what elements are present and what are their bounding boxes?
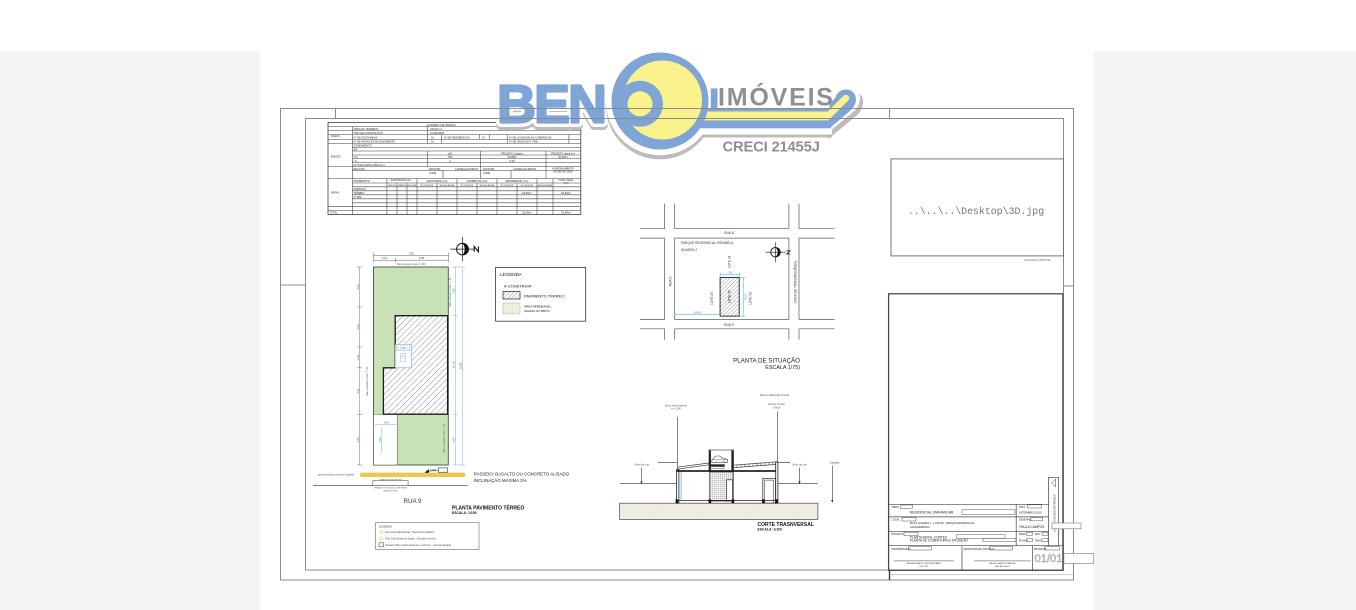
svg-text:OBRA:: OBRA: [892,506,900,509]
svg-text:2° PAV.: 2° PAV. [354,195,363,199]
svg-text:PRANCHA:: PRANCHA: [1034,548,1047,551]
svg-text:N° DE VAGAS ESTACIONAMENTO: N° DE VAGAS ESTACIONAMENTO [354,140,396,144]
svg-text:4,00M: 4,00M [429,171,436,175]
svg-text:ÁREAS: ÁREAS [331,192,340,195]
svg-text:166,60 m²: 166,60 m² [430,127,442,131]
svg-text:RUA 9 QUADRA J - LOTE 30 - PAR: RUA 9 QUADRA J - LOTE 30 - PARQUE RESIDE… [910,521,976,525]
svg-text:7,50: 7,50 [408,251,414,255]
svg-text:ESCALA 1/75): ESCALA 1/75) [765,365,800,371]
svg-text:7,50: 7,50 [727,270,733,274]
svg-text:ZONEAMENTO: ZONEAMENTO [354,144,372,148]
svg-text:LEGENDA: LEGENDA [379,524,392,528]
svg-text:MANTER: MANTER [398,184,406,187]
svg-text:Muro existente h máx = 1,80: Muro existente h máx = 1,80 [366,366,369,396]
svg-text:QUADRA J: QUADRA J [681,248,697,252]
svg-text:A CONSTRUIR: A CONSTRUIR [461,184,474,187]
svg-text:Passeio (Pav.A área aparente e: Passeio (Pav.A área aparente e entorno) … [386,544,452,547]
svg-text:INCLINAÇÃO MÁXIMA 2%: INCLINAÇÃO MÁXIMA 2% [474,478,527,483]
svg-text:PAVIMENTOS: PAVIMENTOS [354,179,371,183]
svg-text:DESENHO:: DESENHO: [1019,519,1032,522]
svg-text:INDIC.: INDIC. [1035,540,1043,543]
svg-text:RESIDENCIAL (m²): RESIDENCIAL (m²) [506,179,529,183]
svg-text:CACHOEIRINHA: CACHOEIRINHA [910,525,930,529]
svg-text:PASSEIO: BASALTO OU CONCRETO A: PASSEIO: BASALTO OU CONCRETO ALISADO [474,471,570,476]
svg-text:ESCALA: 1/100: ESCALA: 1/100 [758,527,783,531]
svg-text:0,28: 0,28 [509,159,515,163]
svg-text:à Rua: à Rua [773,405,781,409]
svg-text:92,84m²: 92,84m² [522,211,532,215]
svg-text:LEI: LEI [448,151,452,155]
svg-text:A REGULARIZAR: A REGULARIZAR [480,184,495,187]
svg-text:N° DE ECONOMIAS: N° DE ECONOMIAS [354,135,378,139]
svg-text:1,84: 1,84 [401,347,406,350]
svg-text:IMÓVEIS: IMÓVEIS [718,82,835,112]
svg-text:Recuo edificação frontal: Recuo edificação frontal [760,393,789,397]
svg-text:TOTAL: TOTAL [330,212,338,215]
svg-text:30,00: 30,00 [743,293,747,300]
svg-text:LATERAL/FUNDOS: LATERAL/FUNDOS [455,167,478,171]
svg-text:ÁREA PERMEÁVEL,: ÁREA PERMEÁVEL, [524,305,552,309]
svg-text:ASSINATURA DO PROPRIETÁRIO: ASSINATURA DO PROPRIETÁRIO [907,562,942,565]
svg-text:FRONTAL: FRONTAL [429,167,441,171]
svg-text:RUA 8: RUA 8 [724,231,734,235]
svg-text:ESCALA: 1/100: ESCALA: 1/100 [452,511,477,515]
svg-text:REGULAR: REGULAR [408,184,417,187]
svg-text:A CONSTRUIR: A CONSTRUIR [421,184,434,187]
svg-text:2,00: 2,00 [356,324,360,330]
svg-text:4,41: 4,41 [356,388,360,394]
svg-text:1,02: 1,02 [430,468,436,472]
svg-text:92,84m²: 92,84m² [561,211,571,215]
svg-text:RESIDENCIAL UNIFAMILIAR: RESIDENCIAL UNIFAMILIAR [910,510,954,514]
svg-text:PADRÃO PMC: PADRÃO PMC [383,489,398,492]
svg-text:PAVIMENTO TÉRREO: PAVIMENTO TÉRREO [524,294,565,299]
svg-text:25,68: 25,68 [458,362,462,369]
svg-text:A REGULARIZAR: A REGULARIZAR [538,184,553,187]
svg-text:16,79: 16,79 [451,361,455,368]
svg-text:EXISTENTE (m²): EXISTENTE (m²) [391,178,411,182]
svg-text:1,40: 1,40 [356,354,360,360]
svg-text:92,84m²: 92,84m² [522,191,532,195]
svg-text:70%: 70% [447,155,453,159]
svg-text:P: P [402,355,404,359]
svg-text:DATA:: DATA: [1019,506,1026,509]
svg-text:5,36: 5,36 [419,256,425,260]
svg-text:Recuo frontal: Recuo frontal [769,402,785,406]
svg-text:LOTE 21: LOTE 21 [728,255,732,268]
svg-text:RECUOS: RECUOS [354,167,365,171]
svg-text:3,00M: 3,00M [483,171,490,175]
svg-text:RG/ CPF: RG/ CPF [920,566,930,568]
svg-text:PLANTA DE SITUAÇÃO: PLANTA DE SITUAÇÃO [733,358,800,365]
svg-text:PROJETO (índice): PROJETO (índice) [501,151,523,155]
svg-text:CRECI 21455J: CRECI 21455J [723,140,820,156]
svg-text:RUA 5: RUA 5 [669,276,673,286]
svg-text:T.O.: T.O. [354,155,359,159]
svg-text:(m²): (m²) [564,181,569,185]
svg-text:I.A.: I.A. [354,159,358,163]
svg-text:ÁREA:: ÁREA: [1019,533,1027,536]
svg-text:INDUSTRIAL (m²): INDUSTRIAL (m²) [427,179,448,183]
svg-text:h = 1,80: h = 1,80 [671,407,681,411]
svg-text:..\..\..\Desktop\3D.jpg: ..\..\..\Desktop\3D.jpg [908,206,1044,217]
svg-text:PARQUE RESIDENCIAL PIRAMELA: PARQUE RESIDENCIAL PIRAMELA [681,241,734,245]
svg-text:BEN: BEN [497,75,605,135]
svg-text:4,00: 4,00 [383,421,389,425]
svg-text:Rua Curb baixa (tinta) - Pavim: Rua Curb baixa (tinta) - Pavimento asfál… [386,531,435,534]
svg-text:rampa acesso veículos: rampa acesso veículos [379,478,402,481]
svg-text:2,85: 2,85 [451,288,455,294]
svg-text:PAULA CAMPOS PARDINI: PAULA CAMPOS PARDINI [989,562,1016,565]
svg-text:SUBSOLO: SUBSOLO [354,187,367,191]
svg-text:30,89%: 30,89% [508,155,517,159]
svg-text:ÁREA DO TERRENO: ÁREA DO TERRENO [354,127,379,131]
svg-text:LINHA DE TRANSMISSÃO(A): LINHA DE TRANSMISSÃO(A) [792,261,797,304]
svg-text:A CONSTRUIR: A CONSTRUIR [501,184,514,187]
svg-text:ALVENARIA: ALVENARIA [430,131,445,135]
svg-text:LOTE 30: LOTE 30 [728,290,732,303]
svg-text:92,84m²: 92,84m² [558,155,568,159]
svg-text:Nível da rua: Nível da rua [634,462,649,466]
svg-text:Muro existente h máx = 1,80: Muro existente h máx = 1,80 [449,277,452,307]
svg-text:SETEMBRO/2020: SETEMBRO/2020 [1019,511,1042,515]
svg-text:COMERCIAL (m²): COMERCIAL (m²) [467,179,488,183]
svg-text:DADOS: DADOS [331,135,340,138]
svg-text:5,05: 5,05 [451,437,455,443]
svg-text:DEMOLIR: DEMOLIR [388,185,397,187]
svg-text:FACHADA FRONTAL: FACHADA FRONTAL [1024,258,1051,262]
svg-text:Muro existente máx = 1,80: Muro existente máx = 1,80 [397,263,426,266]
svg-text:RUA 9: RUA 9 [724,323,734,327]
svg-text:92,84m²: 92,84m² [1019,540,1028,543]
svg-text:PAULA CAMPOS: PAULA CAMPOS [1020,525,1045,529]
svg-text:Calçada: Calçada [830,460,840,464]
svg-text:LOTE 31: LOTE 31 [748,292,752,305]
svg-text:ESC:: ESC: [1035,533,1041,536]
svg-text:ALTURA DIVISA (MÁX.H=): ALTURA DIVISA (MÁX.H=) [354,163,385,167]
svg-text:LOCAL:: LOCAL: [892,519,901,522]
svg-text:RESPONSÁVEL TÉCNICO:: RESPONSÁVEL TÉCNICO: [964,548,995,551]
svg-text:QUADRO DE ÁREAS: QUADRO DE ÁREAS [426,123,455,127]
svg-text:CAU A123456-7: CAU A123456-7 [995,565,1012,568]
svg-text:01/01: 01/01 [1035,553,1063,565]
svg-text:PROJETO (área m²): PROJETO (área m²) [551,151,575,155]
svg-text:REBAIXO DE GUIA CONFORME: REBAIXO DE GUIA CONFORME [374,487,407,490]
svg-text:ÍNDICES: ÍNDICES [331,156,341,159]
svg-text:FRONTAL: FRONTAL [483,167,495,171]
svg-text:LOTE 29: LOTE 29 [710,292,714,305]
svg-text:RUA 9: RUA 9 [404,498,422,505]
svg-text:2,14: 2,14 [382,256,388,260]
svg-text:2,93: 2,93 [378,437,382,443]
svg-text:N° DE VAGAS EXT. PNE: N° DE VAGAS EXT. PNE [509,140,538,144]
svg-text:Nível da rua: Nível da rua [792,462,807,466]
svg-text:Muro existente h máx = 1,80: Muro existente h máx = 1,80 [443,423,446,453]
svg-text:148,06: 148,06 [694,310,702,314]
svg-text:GRAMA OU BRITA: GRAMA OU BRITA [524,309,550,313]
svg-text:PROJETO:: PROJETO: [892,533,905,536]
svg-text:A CONSTRUIR: A CONSTRUIR [521,184,534,187]
svg-text:ZR: ZR [354,147,358,151]
svg-text:(VIGENTE 25%): (VIGENTE 25%) [553,169,572,173]
svg-text:4,44: 4,44 [356,437,360,443]
svg-text:LEGENDA: LEGENDA [500,272,523,277]
svg-text:LATERAL/FUNDOS: LATERAL/FUNDOS [513,167,536,171]
svg-text:A REGULARIZAR: A REGULARIZAR [440,184,455,187]
svg-text:Rua Curb Existente (tinta) - C: Rua Curb Existente (tinta) - Concreto/ t… [386,538,437,541]
svg-text:guia rebaixada conforme padrão: guia rebaixada conforme padrão [318,474,355,477]
svg-text:92,84m²: 92,84m² [561,191,571,195]
svg-text:À CONSTRUIR: À CONSTRUIR [504,284,532,289]
svg-text:4,05: 4,05 [356,284,360,290]
